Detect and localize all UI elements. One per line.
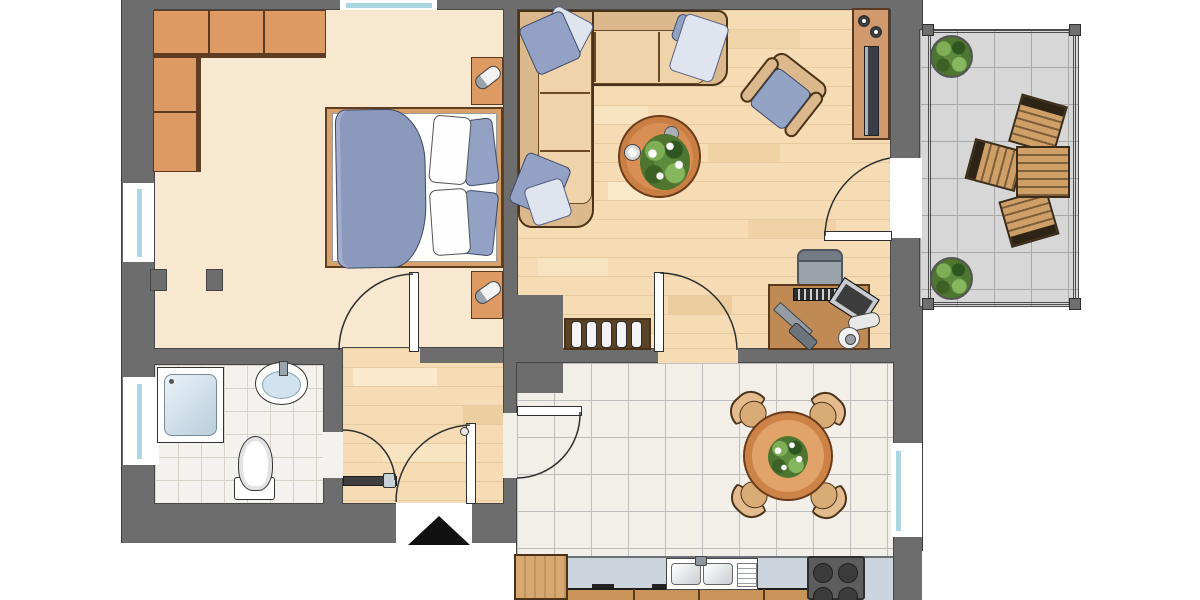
- sink-basin-right: [703, 563, 733, 585]
- balcony-plant-bottom: [930, 257, 973, 300]
- wardrobe-divider-2: [263, 11, 265, 56]
- sofa-seat-divider-2: [658, 32, 660, 82]
- entrance-arrow: [408, 516, 470, 545]
- wall-kitchen-notch: [517, 363, 563, 393]
- coffee-table-plant-flowers: [640, 134, 690, 190]
- wall-hall-bedroom: [420, 348, 503, 363]
- living-kitchen-door: [654, 272, 664, 352]
- shelf-rack-item-1: [571, 321, 582, 348]
- kitchen-door-opening: [503, 413, 517, 478]
- cabinet-divider-3: [763, 589, 765, 600]
- bed-blanket: [335, 108, 428, 269]
- shower-drain: [169, 379, 174, 384]
- shelf-rack-item-5: [631, 321, 642, 348]
- railing-post-sw: [922, 298, 934, 310]
- toilet-bowl: [238, 436, 273, 491]
- wall-stub-right: [207, 270, 222, 290]
- stove-burner-3: [813, 587, 833, 600]
- speaker-knob-1: [858, 15, 870, 27]
- sofa-seat-divider-4: [540, 150, 590, 152]
- sofa-seat-divider-1: [594, 32, 596, 82]
- wall-right-extension: [890, 550, 922, 600]
- balcony-door-opening: [890, 158, 922, 238]
- bathroom-window-glass: [137, 384, 142, 459]
- balcony-door: [824, 231, 892, 241]
- sink-drainboard: [737, 563, 757, 587]
- kitchen-door: [517, 406, 582, 416]
- shelf-rack-item-4: [616, 321, 627, 348]
- bedroom-window-left-glass: [137, 189, 142, 257]
- wall-living-notch: [517, 295, 563, 363]
- desk-mouse: [845, 334, 856, 345]
- bed-pillow-white-1: [428, 114, 472, 185]
- wardrobe-left-front: [196, 57, 201, 172]
- stove-burner-2: [838, 563, 858, 583]
- shelf-rack-item-3: [601, 321, 612, 348]
- sink-faucet: [695, 556, 707, 566]
- stove-burner-1: [813, 563, 833, 583]
- stove-burner-4: [838, 587, 858, 600]
- bathroom-door-opening: [323, 432, 343, 478]
- sofa-seat-divider-3: [540, 92, 590, 94]
- wardrobe-left: [153, 57, 200, 172]
- railing-post-nw: [922, 24, 934, 36]
- speaker-knob-2: [870, 26, 882, 38]
- page-cut-bottom: [96, 543, 517, 600]
- tv-screen: [864, 46, 879, 136]
- living-kitchen-opening: [658, 348, 738, 363]
- balcony-table: [1016, 146, 1070, 198]
- wall-stub-left: [151, 270, 166, 290]
- front-door-knob: [460, 427, 469, 436]
- bedroom-door: [409, 272, 419, 352]
- coffee-cup: [624, 144, 641, 161]
- cabinet-divider-2: [698, 589, 700, 600]
- tall-cabinet: [514, 554, 568, 600]
- wardrobe-top: [153, 10, 326, 57]
- washbasin-faucet: [279, 361, 288, 376]
- railing-post-se: [1069, 298, 1081, 310]
- bed-pillow-white-2: [429, 188, 472, 256]
- balcony-plant-top: [930, 35, 973, 78]
- cabinet-divider-1: [633, 589, 635, 600]
- desk-chair-back: [797, 249, 843, 262]
- railing-post-ne: [1069, 24, 1081, 36]
- front-door: [466, 423, 476, 504]
- dining-table-plant-flowers: [768, 436, 808, 478]
- bathroom-door-handle: [383, 473, 396, 488]
- wardrobe-left-divider: [154, 111, 199, 113]
- bedroom-window-top-glass: [346, 3, 432, 8]
- floor-plan: [0, 0, 1200, 600]
- wardrobe-divider-1: [208, 11, 210, 56]
- kitchen-window-glass: [896, 451, 901, 531]
- cabinet-handle-1: [592, 584, 614, 588]
- sink-basin-left: [671, 563, 701, 585]
- shelf-rack-item-2: [586, 321, 597, 348]
